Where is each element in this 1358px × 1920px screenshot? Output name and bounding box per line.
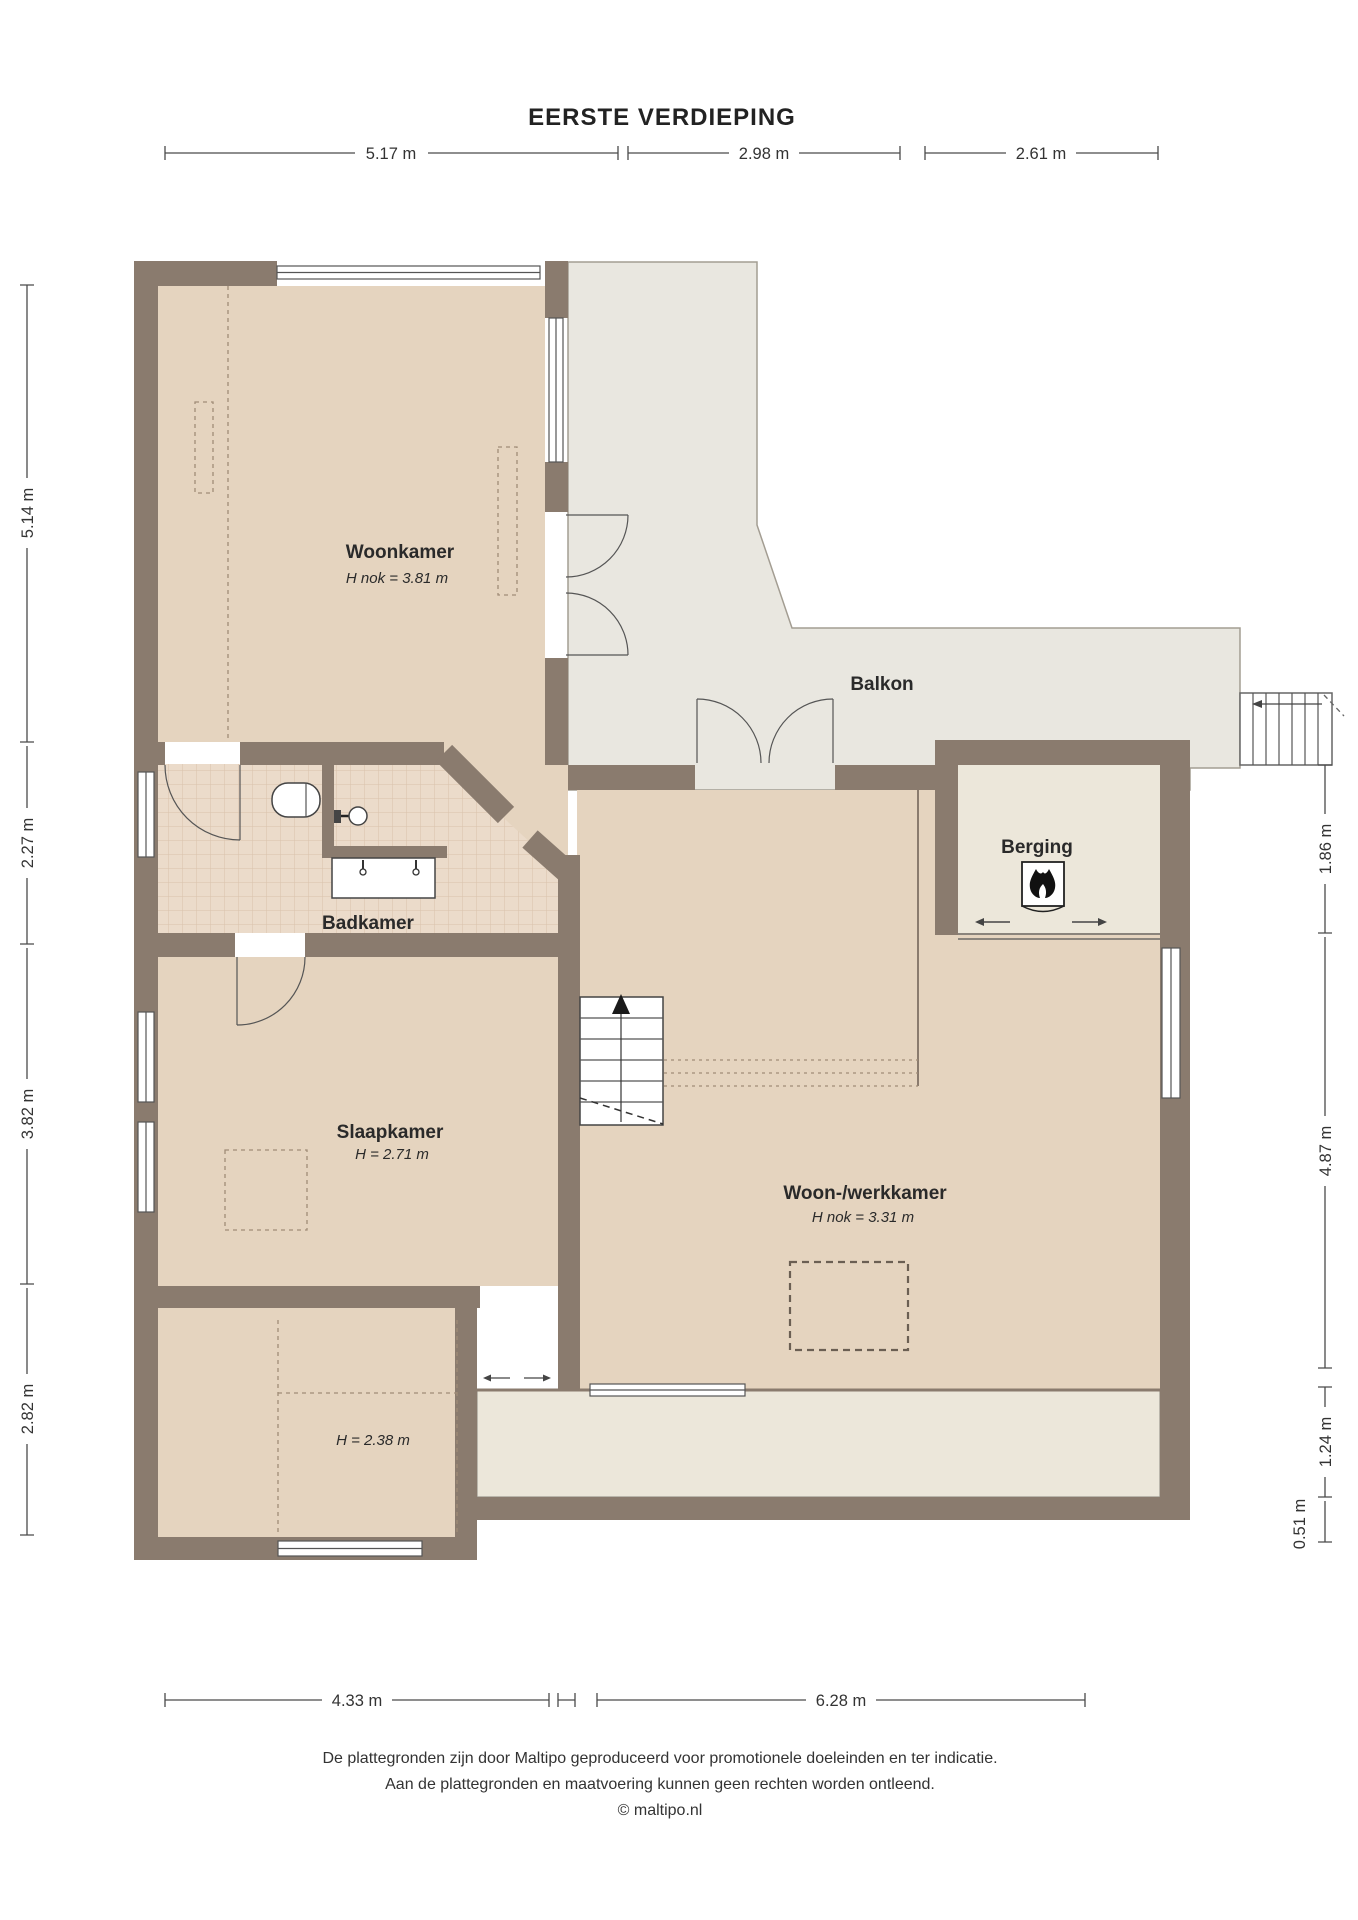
- toilet-icon: [272, 783, 320, 817]
- room-note-woonwerkkamer: H nok = 3.31 m: [812, 1209, 914, 1226]
- wall-woonkamer-right-2: [545, 462, 568, 512]
- dim-bottom-1: 4.33 m: [332, 1692, 382, 1710]
- room-label-balkon: Balkon: [850, 674, 913, 695]
- wall-strip-bottom: [477, 1497, 1190, 1520]
- room-label-badkamer: Badkamer: [322, 913, 414, 934]
- window-woonkamer-right: [549, 318, 563, 462]
- dimensions-top: 5.17 m 2.98 m 2.61 m: [165, 145, 1158, 163]
- wall-left: [134, 261, 158, 1560]
- wall-woonkamer-right-3: [545, 658, 568, 765]
- wall-badkamer-bottom-2: [305, 933, 560, 957]
- dim-right-2: 4.87 m: [1317, 1126, 1335, 1176]
- room-note-slaapkamer: H = 2.71 m: [355, 1146, 429, 1163]
- room-label-slaapkamer: Slaapkamer: [337, 1122, 444, 1143]
- sink-icon: [332, 858, 435, 898]
- page-title: EERSTE VERDIEPING: [528, 104, 796, 131]
- room-h238-floor: [158, 1308, 455, 1537]
- dimensions-right: 1.86 m 4.87 m 1.24 m 0.51 m: [1291, 765, 1335, 1549]
- dim-left-1: 5.14 m: [19, 488, 37, 538]
- window-woonwerkkamer-right: [1162, 948, 1180, 1098]
- window-strip-top: [590, 1384, 745, 1396]
- wall-badkamer-partition-h: [322, 846, 447, 858]
- dimensions-bottom: 4.33 m 6.28 m: [165, 1692, 1085, 1710]
- wall-top-left: [134, 261, 277, 286]
- bottom-strip-floor: [477, 1390, 1160, 1497]
- room-label-woonwerkkamer: Woon-/werkkamer: [783, 1183, 947, 1204]
- dimensions-left: 5.14 m 2.27 m 3.82 m 2.82 m: [19, 285, 37, 1535]
- dim-bottom-2: 6.28 m: [816, 1692, 866, 1710]
- room-note-woonkamer: H nok = 3.81 m: [346, 570, 448, 587]
- window-slaapkamer-left-2: [138, 1122, 154, 1212]
- dim-left-3: 3.82 m: [19, 1089, 37, 1139]
- dim-top-3: 2.61 m: [1016, 145, 1066, 163]
- wall-balcony-bottom-1: [568, 765, 695, 790]
- window-top: [277, 266, 540, 279]
- dim-right-3: 1.24 m: [1317, 1417, 1335, 1467]
- wall-slaapkamer-bottom: [134, 1286, 480, 1308]
- balcony-floor: [568, 262, 1240, 790]
- balcony: [568, 262, 1240, 790]
- wall-woonkamer-right-1: [545, 261, 568, 318]
- room-label-berging: Berging: [1001, 837, 1073, 858]
- wall-right: [1160, 740, 1190, 1520]
- dim-top-2: 2.98 m: [739, 145, 789, 163]
- room-woonkamer-floor: [158, 286, 545, 742]
- wall-badkamer-bottom-1: [134, 933, 235, 957]
- dim-left-2: 2.27 m: [19, 818, 37, 868]
- dim-top-1: 5.17 m: [366, 145, 416, 163]
- wall-balcony-bottom-2: [835, 765, 935, 790]
- boiler-icon: [1022, 862, 1064, 912]
- dim-left-4: 2.82 m: [19, 1384, 37, 1434]
- window-badkamer-left: [138, 772, 154, 857]
- wall-berging-top: [935, 740, 1190, 765]
- wall-badkamer-top-2: [240, 742, 444, 765]
- wall-berging-left: [935, 740, 958, 935]
- footer-line-1: De plattegronden zijn door Maltipo gepro…: [322, 1750, 997, 1767]
- footer-line-2: Aan de plattegronden en maatvoering kunn…: [385, 1776, 935, 1793]
- dim-right-1: 1.86 m: [1317, 824, 1335, 874]
- footer-line-3: © maltipo.nl: [618, 1802, 703, 1819]
- wall-h238-right: [455, 1286, 477, 1537]
- dim-right-4: 0.51 m: [1291, 1499, 1309, 1549]
- footer: De plattegronden zijn door Maltipo gepro…: [322, 1750, 997, 1819]
- window-slaapkamer-left-1: [138, 1012, 154, 1102]
- wall-hall-left: [558, 855, 580, 1390]
- sliding-door-strip: [483, 1375, 551, 1382]
- wall-badkamer-top-1: [134, 742, 165, 765]
- wall-badkamer-partition-v: [322, 742, 334, 852]
- exterior-staircase: [1240, 693, 1344, 765]
- window-bottom: [278, 1541, 422, 1556]
- room-note-h238: H = 2.38 m: [336, 1432, 410, 1449]
- room-label-woonkamer: Woonkamer: [346, 542, 455, 563]
- floor-plan-canvas: EERSTE VERDIEPING: [0, 0, 1358, 1920]
